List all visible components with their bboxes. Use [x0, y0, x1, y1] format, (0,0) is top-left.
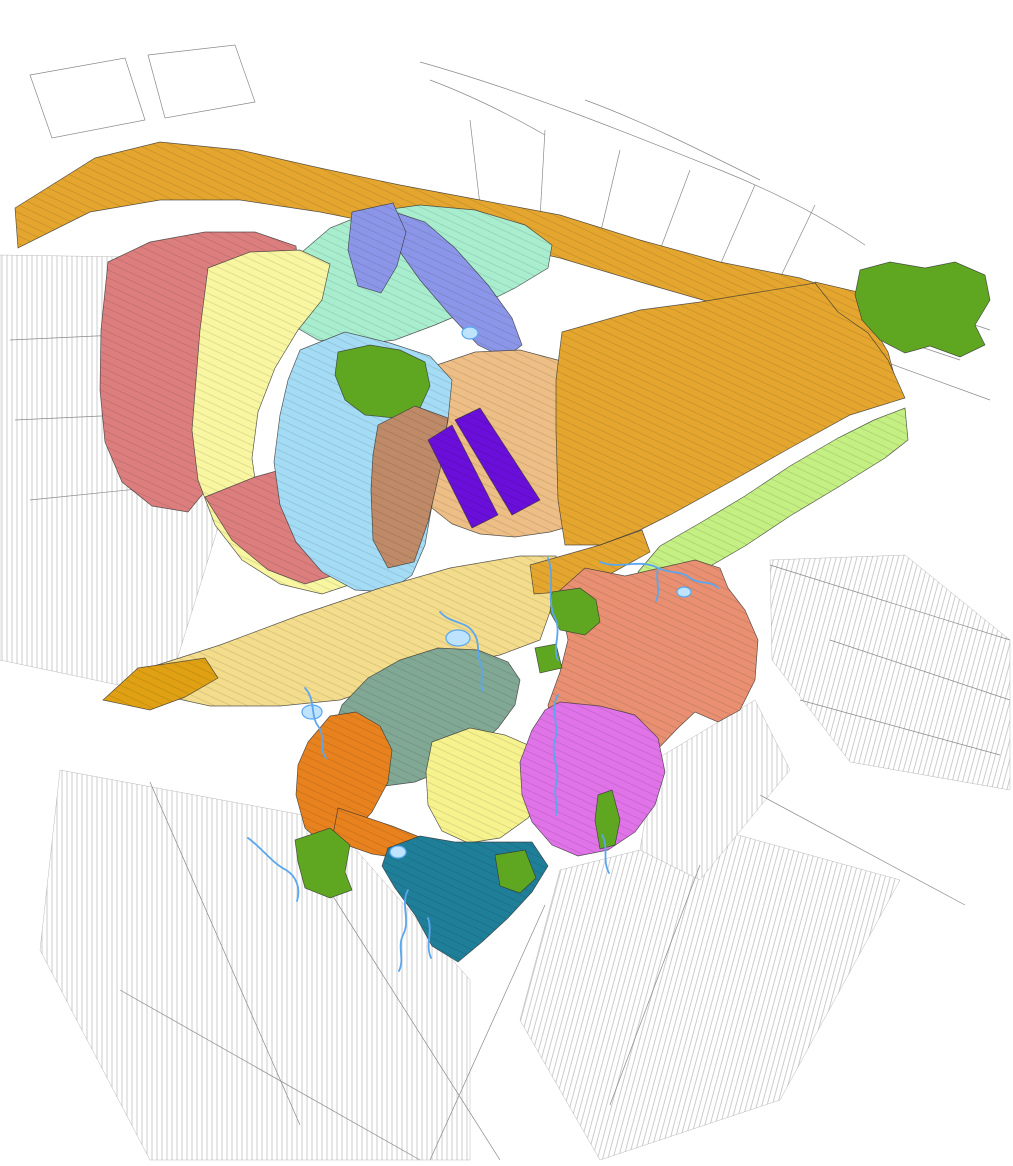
map-canvas: [0, 0, 1013, 1166]
parcel-line: [30, 58, 145, 138]
hatch-area: [770, 555, 1010, 790]
hatch-area: [520, 830, 900, 1160]
parcel-line: [148, 45, 255, 118]
zoning-phase-map: [0, 0, 1013, 1166]
parcel-line: [780, 205, 815, 278]
parcel-line: [720, 185, 755, 265]
parcel-line: [470, 120, 480, 205]
retention-pond: [462, 327, 478, 339]
retention-pond: [446, 630, 470, 646]
parcel-line: [600, 150, 620, 235]
parcel-line: [660, 170, 690, 250]
parcel-line: [430, 80, 545, 135]
hatch-area: [40, 770, 470, 1160]
retention-pond: [677, 587, 691, 597]
parcel-line: [585, 100, 760, 180]
parcel-line: [540, 130, 545, 218]
retention-pond: [390, 846, 406, 858]
